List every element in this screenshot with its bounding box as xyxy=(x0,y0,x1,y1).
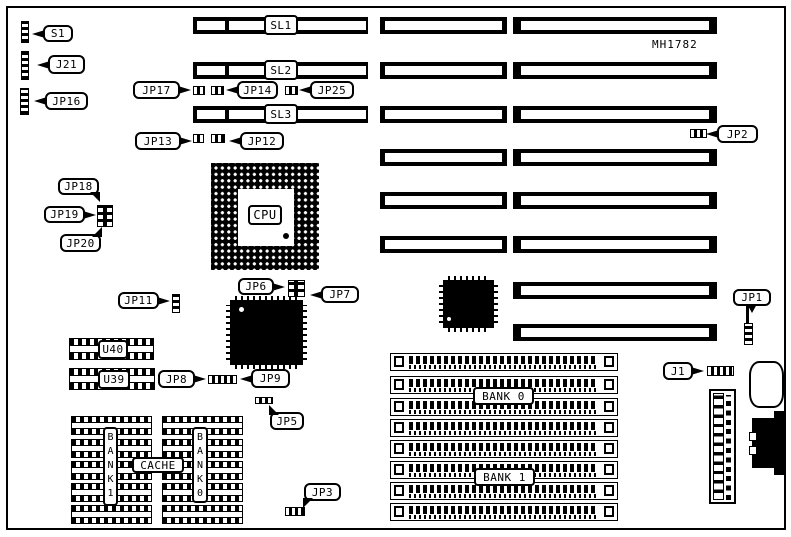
jumper-jp8-jp9 xyxy=(208,375,237,384)
callout-jp6: JP6 xyxy=(238,278,274,295)
callout-jp17-label: JP17 xyxy=(142,85,171,96)
isa-slot-ext xyxy=(380,149,507,166)
callout-jp18: JP18 xyxy=(58,178,99,195)
chip-pin1-dot xyxy=(239,307,244,312)
isa-slot-ext xyxy=(380,192,507,209)
callout-jp25-label: JP25 xyxy=(318,85,347,96)
cpu-pin1-dot xyxy=(283,233,289,239)
callout-j1-label: J1 xyxy=(671,366,685,377)
motherboard-layout-diagram: MH1782 SL1 SL2 SL3 S1 J21 JP16 JP17 JP14… xyxy=(0,0,791,537)
callout-j1: J1 xyxy=(663,362,693,380)
jumper-jp12 xyxy=(211,134,225,143)
jumper-jp5 xyxy=(255,397,273,404)
callout-jp19: JP19 xyxy=(44,206,85,223)
callout-jp2-label: JP2 xyxy=(727,129,748,140)
callout-jp9: JP9 xyxy=(251,369,290,388)
jumper-jp25 xyxy=(285,86,298,95)
slot-window xyxy=(197,66,225,75)
slot-window xyxy=(197,110,225,119)
isa-slot xyxy=(513,236,717,253)
callout-jp2: JP2 xyxy=(717,125,758,143)
isa-slot-ext xyxy=(380,236,507,253)
jumper-jp1 xyxy=(744,323,753,345)
callout-jp18-label: JP18 xyxy=(64,181,93,192)
switch-s1-connector xyxy=(21,21,29,43)
callout-jp17: JP17 xyxy=(133,81,180,99)
isa-slot xyxy=(513,17,717,34)
callout-s1-label: S1 xyxy=(51,28,65,39)
jumper-jp13 xyxy=(193,134,204,143)
simm-bank1-label: BANK 1 xyxy=(474,468,535,486)
connector-j1 xyxy=(707,366,734,376)
jumper-jp11 xyxy=(172,294,180,313)
isa-slot-ext xyxy=(380,62,507,79)
callout-jp19-label: JP19 xyxy=(50,209,79,220)
callout-jp16: JP16 xyxy=(45,92,88,110)
simm-socket-1 xyxy=(390,353,618,371)
jumper-block-jp18-jp19-jp20 xyxy=(97,205,113,227)
callout-jp7-label: JP7 xyxy=(329,289,350,300)
simm-socket-5 xyxy=(390,440,618,458)
isa-slot-ext xyxy=(380,17,507,34)
isa-slot xyxy=(513,324,717,341)
callout-jp25: JP25 xyxy=(310,81,354,99)
isa-slot xyxy=(513,192,717,209)
callout-jp1-label: JP1 xyxy=(741,292,762,303)
slot-label-sl3: SL3 xyxy=(264,104,298,124)
callout-jp3-label: JP3 xyxy=(312,487,333,498)
isa-slot xyxy=(513,149,717,166)
chip-pin1-dot xyxy=(447,317,451,321)
callout-jp5: JP5 xyxy=(270,412,304,430)
simm-bank0-label: BANK 0 xyxy=(473,387,534,405)
callout-jp5-label: JP5 xyxy=(276,416,297,427)
connector-j21 xyxy=(21,51,29,80)
callout-jp13-label: JP13 xyxy=(144,136,173,147)
callout-jp11-label: JP11 xyxy=(124,295,153,306)
power-connector xyxy=(709,389,736,504)
callout-jp8: JP8 xyxy=(158,370,195,388)
callout-jp3: JP3 xyxy=(304,483,341,501)
callout-jp13: JP13 xyxy=(135,132,181,150)
cache-chip xyxy=(162,505,243,524)
slot-label-sl2: SL2 xyxy=(264,60,298,80)
isa-slot xyxy=(513,282,717,299)
simm-socket-4 xyxy=(390,419,618,437)
callout-jp20-label: JP20 xyxy=(66,238,95,249)
board-id: MH1782 xyxy=(652,38,698,51)
cache-bank1-label: BANK1 xyxy=(103,427,118,506)
slot-label-sl1: SL1 xyxy=(264,15,298,35)
io-chip xyxy=(443,280,494,328)
callout-s1: S1 xyxy=(43,25,73,42)
keyboard-din-connector xyxy=(752,418,786,468)
callout-jp12: JP12 xyxy=(240,132,284,150)
callout-jp1: JP1 xyxy=(733,289,771,306)
callout-jp9-label: JP9 xyxy=(260,373,281,384)
callout-jp11: JP11 xyxy=(118,292,159,309)
simm-socket-8 xyxy=(390,503,618,521)
callout-jp12-label: JP12 xyxy=(248,136,277,147)
cpu-label: CPU xyxy=(248,205,282,225)
callout-jp16-label: JP16 xyxy=(52,96,81,107)
callout-jp14: JP14 xyxy=(237,81,278,99)
jumper-jp3 xyxy=(285,507,305,516)
inductor-outline xyxy=(749,361,784,408)
isa-slot xyxy=(513,106,717,123)
jumper-jp14 xyxy=(211,86,224,95)
chipset-chip xyxy=(230,300,303,365)
callout-jp8-label: JP8 xyxy=(166,374,187,385)
isa-slot-ext xyxy=(380,106,507,123)
jumper-jp2 xyxy=(690,129,707,138)
jumper-block-jp6-jp7 xyxy=(288,280,305,297)
callout-jp14-label: JP14 xyxy=(243,85,272,96)
callout-j21-label: J21 xyxy=(56,59,77,70)
callout-jp7: JP7 xyxy=(321,286,359,303)
connector-jp16 xyxy=(20,88,29,115)
slot-window xyxy=(197,21,225,30)
chip-u39-label: U39 xyxy=(98,370,130,389)
callout-jp6-label: JP6 xyxy=(245,281,266,292)
cache-bank0-label: BANK0 xyxy=(192,427,208,503)
cache-chip xyxy=(71,505,152,524)
chip-u40-label: U40 xyxy=(98,340,128,359)
callout-j21: J21 xyxy=(48,55,85,74)
isa-slot xyxy=(513,62,717,79)
jumper-jp17 xyxy=(193,86,205,95)
cache-label: CACHE xyxy=(132,457,184,473)
callout-jp20: JP20 xyxy=(60,234,101,252)
